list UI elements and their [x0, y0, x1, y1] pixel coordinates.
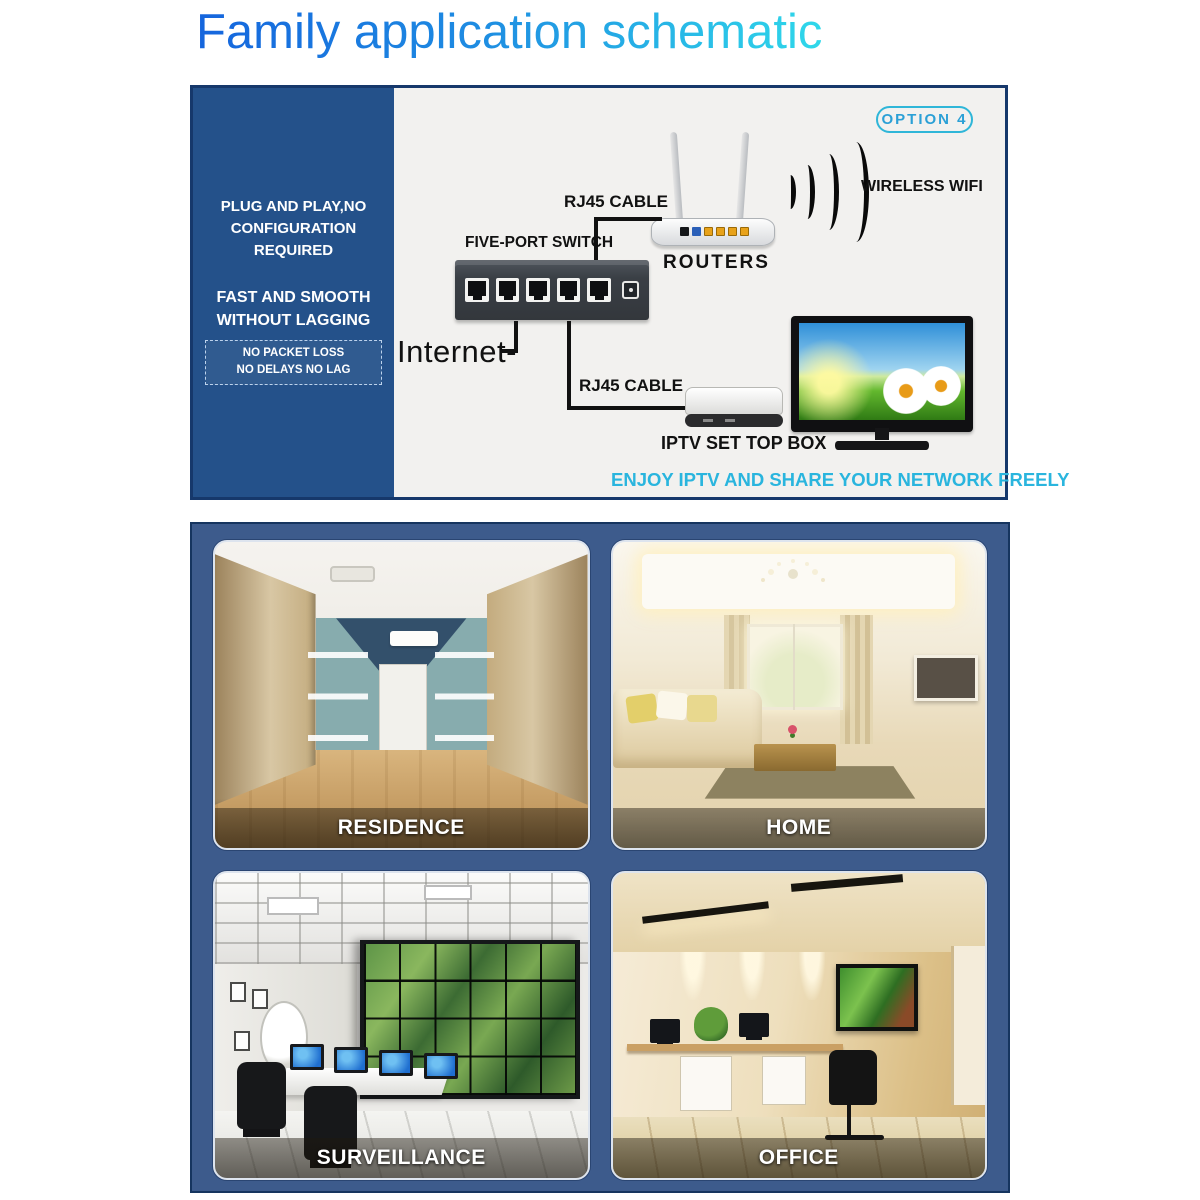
stb-base	[685, 414, 783, 427]
badge-line: NO PACKET LOSS	[208, 345, 379, 362]
scene-spotlight	[739, 952, 765, 1000]
tv-screen	[799, 323, 965, 420]
photo-label-bar: HOME	[613, 808, 986, 848]
badge-line: NO DELAYS NO LAG	[208, 362, 379, 379]
stb-indicator	[703, 419, 713, 422]
wifi-arc	[819, 154, 839, 230]
scene-desk	[627, 1044, 843, 1051]
feature-sidebar: PLUG AND PLAY,NO CONFIGURATION REQUIRED …	[193, 88, 394, 497]
router-port-wan	[692, 227, 701, 236]
wifi-signal-icon	[785, 140, 869, 244]
scene-bunk-bed	[435, 652, 495, 774]
rj45-cable-bottom-label: RJ45 CABLE	[579, 376, 683, 396]
tagline: ENJOY IPTV AND SHARE YOUR NETWORK FREELY	[611, 469, 1003, 491]
feature-text-line: WITHOUT LAGGING	[193, 309, 394, 332]
scene-wall-art	[836, 964, 918, 1031]
switch-port	[465, 278, 489, 302]
five-port-switch-label: FIVE-PORT SWITCH	[465, 234, 613, 252]
scene-monitor	[334, 1047, 368, 1073]
router-port-lan	[716, 227, 725, 236]
scene-spotlight	[680, 952, 706, 1000]
cable-line	[567, 321, 571, 410]
five-port-switch-icon	[455, 260, 649, 320]
photo-label: OFFICE	[759, 1146, 839, 1170]
scene-wardrobe	[215, 554, 316, 805]
wifi-arc	[785, 175, 796, 209]
photo-label: HOME	[766, 816, 831, 840]
scene-ceiling-cove	[642, 554, 955, 609]
tv-icon	[791, 316, 973, 452]
router-port-lan	[728, 227, 737, 236]
router-body	[651, 218, 775, 246]
scene-office-chair	[237, 1062, 285, 1129]
scene-spotlight	[799, 952, 825, 1000]
page-title: Family application schematic	[196, 4, 822, 60]
photo-label: SURVEILLANCE	[317, 1146, 486, 1170]
router-port-lan	[704, 227, 713, 236]
feature-text-line: FAST AND SMOOTH	[193, 286, 394, 309]
cable-line	[501, 349, 518, 353]
scene-office-chair	[829, 1050, 877, 1105]
wifi-arc	[800, 165, 815, 219]
router-port-lan	[740, 227, 749, 236]
feature-text-plug-and-play: PLUG AND PLAY,NO CONFIGURATION REQUIRED	[193, 196, 394, 261]
scene-door	[951, 946, 985, 1105]
scene-monitor	[739, 1013, 769, 1037]
no-packet-loss-badge: NO PACKET LOSS NO DELAYS NO LAG	[205, 340, 382, 385]
scene-plant	[694, 1007, 728, 1041]
scene-picture-frame	[230, 982, 246, 1002]
router-antenna	[736, 132, 749, 224]
router-port	[680, 227, 689, 236]
switch-port	[526, 278, 550, 302]
scene-ceiling-light	[267, 897, 319, 915]
feature-text-fast-smooth: FAST AND SMOOTH WITHOUT LAGGING	[193, 286, 394, 332]
residence-photo: RESIDENCE	[213, 540, 590, 850]
office-photo: OFFICE	[611, 871, 988, 1181]
set-top-box-icon	[685, 387, 783, 427]
scene-curtain	[840, 615, 874, 743]
router-antenna	[670, 132, 683, 224]
page-canvas: Family application schematic PLUG AND PL…	[0, 0, 1200, 1200]
scene-window-frame	[793, 624, 795, 710]
rj45-cable-top-label: RJ45 CABLE	[564, 192, 668, 212]
internet-label: Internet-	[397, 334, 517, 370]
scene-pillow	[656, 690, 689, 720]
scene-ceiling-light	[330, 566, 375, 581]
photo-label-bar: RESIDENCE	[215, 808, 588, 848]
scene-monitor	[290, 1044, 324, 1070]
stb-indicator	[725, 419, 735, 422]
switch-port	[587, 278, 611, 302]
tv-stand	[875, 428, 889, 440]
application-schematic-diagram: PLUG AND PLAY,NO CONFIGURATION REQUIRED …	[190, 85, 1008, 500]
surveillance-photo: SURVEILLANCE	[213, 871, 590, 1181]
scene-picture-frame	[234, 1031, 250, 1051]
scene-bunk-bed	[308, 652, 368, 774]
switch-port	[557, 278, 581, 302]
feature-text-line: CONFIGURATION REQUIRED	[193, 218, 394, 262]
scene-pillow	[687, 695, 717, 722]
wireless-wifi-label: WIRELESS WIFI	[861, 178, 983, 196]
router-icon	[651, 128, 775, 248]
scene-monitor	[424, 1053, 458, 1079]
scene-wall-tv	[914, 655, 977, 701]
daisy-flower	[921, 366, 961, 406]
tv-bezel	[791, 316, 973, 432]
scene-picture-frame	[252, 989, 268, 1009]
photo-label-bar: OFFICE	[613, 1138, 986, 1178]
scene-monitor	[650, 1019, 680, 1043]
scene-drawer-unit	[762, 1056, 807, 1105]
feature-text-line: PLUG AND PLAY,NO	[193, 196, 394, 218]
stb-body	[685, 387, 783, 415]
scene-air-conditioner	[390, 631, 438, 646]
home-photo: HOME	[611, 540, 988, 850]
switch-port	[496, 278, 520, 302]
routers-label: ROUTERS	[663, 252, 770, 274]
switch-power-port	[622, 281, 639, 299]
cable-line	[594, 217, 662, 221]
application-gallery: RESIDENCE HOME	[190, 522, 1010, 1193]
photo-label: RESIDENCE	[338, 816, 465, 840]
cable-line	[567, 406, 689, 410]
scene-ceiling-light	[424, 885, 472, 900]
tv-stand-base	[835, 441, 929, 450]
option-4-badge: OPTION 4	[876, 106, 973, 133]
scene-flowers	[788, 725, 797, 734]
photo-label-bar: SURVEILLANCE	[215, 1138, 588, 1178]
scene-pillow	[626, 693, 659, 724]
router-ports	[680, 227, 749, 236]
scene-wardrobe	[487, 554, 588, 805]
scene-monitor	[379, 1050, 413, 1076]
scene-coffee-table	[754, 744, 836, 771]
scene-chair-post	[847, 1105, 851, 1136]
scene-drawer-unit	[680, 1056, 732, 1111]
